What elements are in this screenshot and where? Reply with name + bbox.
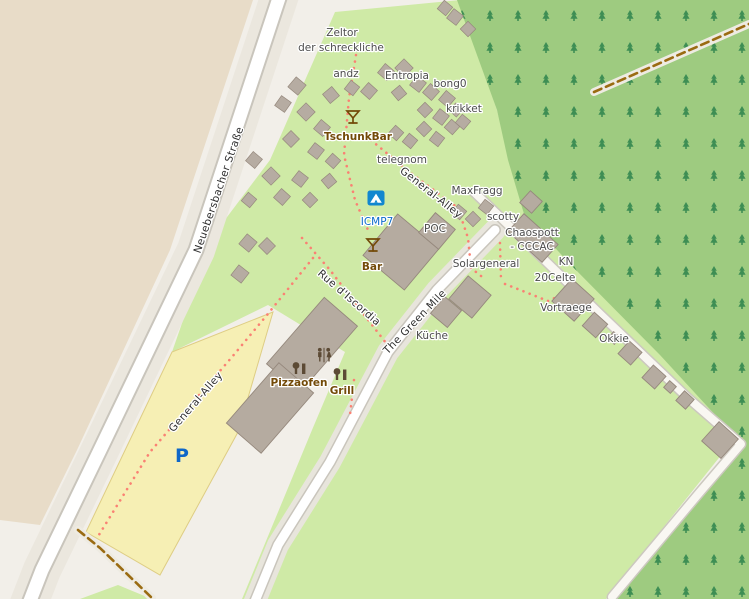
poi-label-grill: Grill (330, 385, 355, 397)
place-label-chaospott: Chaospott (505, 227, 559, 239)
place-label-krikket: krikket (446, 103, 482, 115)
place-label-solargeneral: Solargeneral (453, 258, 519, 270)
place-label-vortraege: Vortraege (540, 302, 592, 314)
place-label-kn: KN (559, 256, 574, 268)
place-label-poc: POC (424, 223, 446, 235)
place-label-maxfragg: MaxFragg (451, 185, 502, 197)
place-label-telegnom: telegnom (377, 154, 427, 166)
poi-label-pizzaofen: Pizzaofen (271, 377, 328, 389)
place-label-okkie: Okkie (599, 333, 629, 345)
place-label-cccac: - CCCAC (510, 241, 553, 253)
poi-label-bar: Bar (362, 261, 383, 273)
place-label-scotty: scotty (487, 211, 519, 223)
parking-p-icon[interactable]: P (175, 445, 189, 467)
place-label-entropia: Entropia (385, 70, 429, 82)
place-label-zeltor-line2: der schreckliche (298, 42, 384, 54)
camping-icon[interactable] (368, 191, 385, 206)
place-label-kueche: Küche (416, 330, 448, 342)
poi-label-icmp7: ICMP7 (361, 216, 394, 228)
place-label-bong0: bong0 (433, 78, 466, 90)
place-label-andz: andz (333, 68, 359, 80)
osm-map[interactable]: P Neuebersbacher Straße General-Alley Ge… (0, 0, 749, 599)
map-canvas[interactable]: P Neuebersbacher Straße General-Alley Ge… (0, 0, 749, 599)
poi-label-tschunkbar: TschunkBar (324, 131, 393, 143)
place-label-zeltor-line1: Zeltor (326, 27, 358, 39)
place-label-20celte: 20Celte (535, 272, 576, 284)
